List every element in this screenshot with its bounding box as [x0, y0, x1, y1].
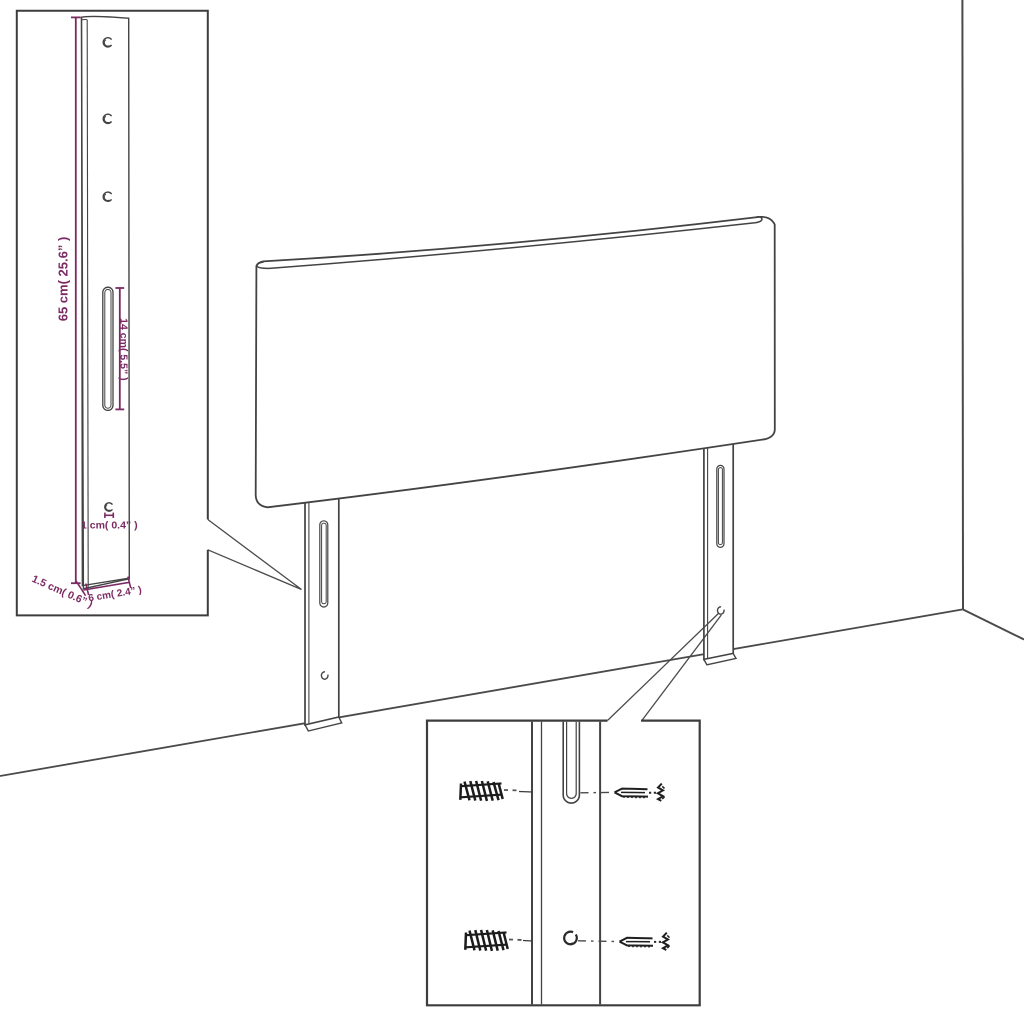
svg-text:1 cm( 0.4” ): 1 cm( 0.4” ) — [81, 520, 138, 532]
svg-text:65 cm( 25.6” ): 65 cm( 25.6” ) — [56, 237, 71, 322]
svg-text:14 cm( 5.5” ): 14 cm( 5.5” ) — [118, 318, 130, 380]
